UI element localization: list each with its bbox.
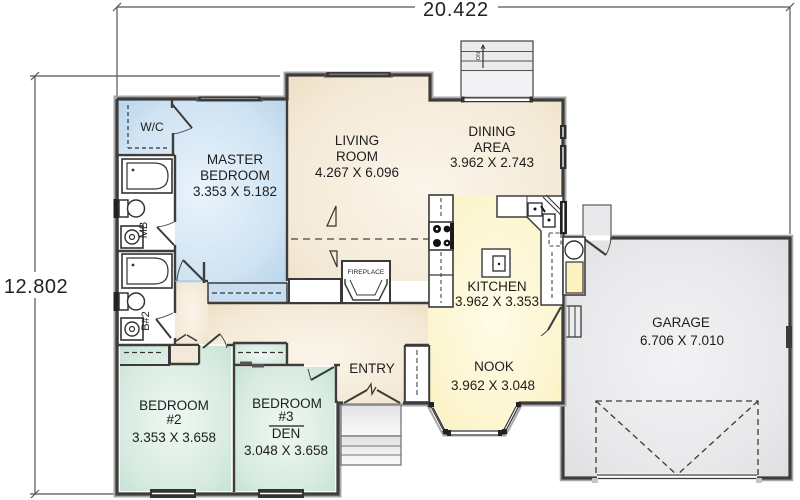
svg-text:LIVING: LIVING bbox=[335, 133, 379, 148]
svg-text:DEN: DEN bbox=[272, 426, 301, 441]
svg-text:#3: #3 bbox=[278, 409, 293, 424]
svg-text:4.267 X 6.096: 4.267 X 6.096 bbox=[315, 165, 399, 180]
svg-text:DN: DN bbox=[476, 52, 482, 60]
svg-text:#2: #2 bbox=[166, 412, 181, 427]
svg-text:3.962 X 3.048: 3.962 X 3.048 bbox=[451, 378, 535, 393]
svg-text:B#2: B#2 bbox=[140, 311, 152, 331]
svg-text:3.353 X 3.658: 3.353 X 3.658 bbox=[132, 430, 216, 445]
svg-text:MB: MB bbox=[138, 222, 150, 239]
svg-text:MASTER: MASTER bbox=[207, 152, 264, 167]
svg-text:20.422: 20.422 bbox=[423, 0, 489, 21]
svg-text:12.802: 12.802 bbox=[4, 276, 68, 298]
svg-text:3.048 X 3.658: 3.048 X 3.658 bbox=[244, 443, 328, 458]
svg-text:W/C: W/C bbox=[140, 120, 164, 134]
svg-text:NOOK: NOOK bbox=[474, 359, 514, 374]
svg-text:3.353 X 5.182: 3.353 X 5.182 bbox=[193, 184, 277, 199]
svg-text:KITCHEN: KITCHEN bbox=[467, 279, 526, 294]
svg-text:FIREPLACE: FIREPLACE bbox=[348, 269, 385, 276]
svg-text:ENTRY: ENTRY bbox=[349, 361, 395, 376]
svg-text:BEDROOM: BEDROOM bbox=[200, 168, 270, 183]
svg-text:ROOM: ROOM bbox=[336, 149, 378, 164]
svg-text:3.962 X 2.743: 3.962 X 2.743 bbox=[450, 155, 534, 170]
svg-text:DINING: DINING bbox=[468, 124, 515, 139]
svg-text:GARAGE: GARAGE bbox=[652, 315, 710, 330]
svg-text:BEDROOM: BEDROOM bbox=[139, 398, 209, 413]
svg-text:6.706 X 7.010: 6.706 X 7.010 bbox=[640, 333, 724, 348]
svg-text:3.962 X 3.353: 3.962 X 3.353 bbox=[455, 294, 539, 309]
svg-text:AREA: AREA bbox=[474, 140, 511, 155]
